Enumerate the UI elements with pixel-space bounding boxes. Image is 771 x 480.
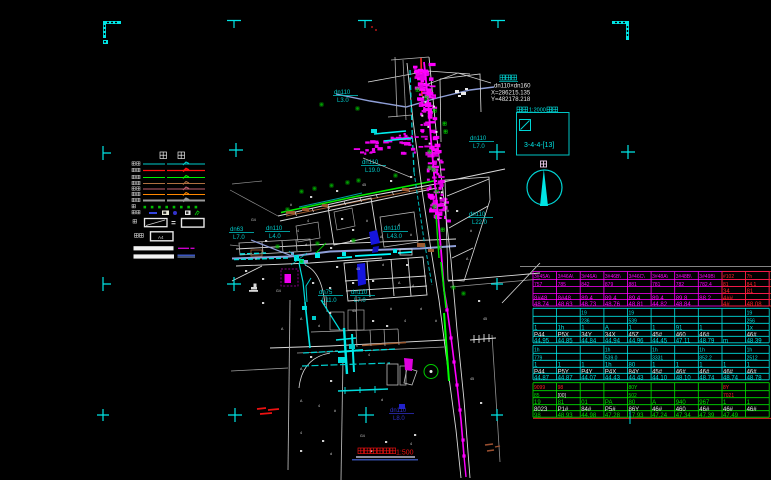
svg-text:#: # (470, 229, 472, 233)
svg-text:1x: 1x (747, 326, 753, 332)
svg-text:d: d (420, 307, 422, 311)
svg-text:44.87: 44.87 (558, 376, 574, 382)
svg-text:dn110×dn160: dn110×dn160 (494, 84, 531, 90)
svg-text:#: # (447, 209, 449, 213)
svg-text:256: 256 (747, 319, 756, 325)
svg-text:81: 81 (723, 282, 729, 288)
svg-text:L19.0: L19.0 (365, 168, 381, 174)
svg-text:48.76: 48.76 (605, 302, 621, 308)
svg-text:48.84: 48.84 (676, 302, 692, 308)
svg-text:4: 4 (368, 353, 370, 357)
svg-text:4: 4 (297, 229, 299, 233)
svg-text:dn110: dn110 (470, 136, 487, 142)
svg-text:4: 4 (307, 219, 309, 223)
svg-text:44.45: 44.45 (652, 339, 668, 345)
svg-text:47.11: 47.11 (676, 339, 691, 345)
svg-text:940: 940 (676, 400, 687, 406)
svg-text:G4: G4 (360, 434, 365, 438)
svg-text:d: d (318, 324, 320, 328)
svg-text:48.63: 48.63 (558, 302, 574, 308)
svg-text:4: 4 (410, 442, 412, 446)
svg-text:G4: G4 (276, 289, 281, 293)
svg-text:L7.0: L7.0 (354, 298, 366, 304)
svg-text:842: 842 (581, 282, 590, 288)
svg-text:3#46A\: 3#46A\ (558, 274, 574, 280)
svg-text:3#46C\: 3#46C\ (629, 274, 646, 280)
svg-text:A: A (605, 326, 609, 332)
svg-text:48.78: 48.78 (747, 376, 763, 382)
svg-text:1h: 1h (558, 326, 565, 332)
svg-text:539.0: 539.0 (605, 356, 618, 362)
svg-text:44.95: 44.95 (534, 339, 550, 345)
svg-text:3-4-4-[13]: 3-4-4-[13] (524, 142, 554, 149)
svg-text:dn110: dn110 (384, 226, 401, 232)
svg-text:9099: 9099 (534, 385, 545, 391)
svg-text:PA: PA (605, 400, 613, 406)
svg-text:48.73: 48.73 (581, 302, 597, 308)
svg-text:85: 85 (534, 393, 540, 399)
svg-text:45: 45 (352, 309, 356, 313)
svg-text:45: 45 (470, 377, 474, 381)
svg-text:L4.0: L4.0 (269, 234, 281, 240)
svg-text:7021: 7021 (723, 393, 734, 399)
svg-text:44.43: 44.43 (629, 376, 645, 382)
svg-text:A: A (652, 400, 656, 406)
svg-text:Y=482178.218: Y=482178.218 (491, 97, 531, 103)
svg-text:98: 98 (558, 385, 564, 391)
svg-text:757: 757 (534, 282, 543, 288)
svg-text:L8.0: L8.0 (393, 416, 405, 422)
svg-text:X=286215.135: X=286215.135 (491, 91, 531, 97)
svg-text:4: 4 (412, 284, 414, 288)
svg-text:#: # (255, 257, 257, 261)
svg-text:48.08: 48.08 (747, 302, 763, 308)
svg-text:dn110: dn110 (266, 226, 283, 232)
svg-text:#: # (334, 409, 336, 413)
svg-text:#: # (290, 203, 292, 207)
svg-text:#: # (390, 307, 392, 311)
svg-text:785: 785 (558, 282, 567, 288)
svg-text:3#48A\: 3#48A\ (652, 274, 668, 280)
svg-text:#: # (435, 319, 437, 323)
svg-text:#: # (410, 233, 412, 237)
svg-text:19: 19 (629, 311, 635, 317)
svg-text:781: 781 (652, 282, 661, 288)
svg-text:1h: 1h (699, 348, 705, 354)
svg-text:539: 539 (629, 319, 638, 325)
svg-text:3#46A\: 3#46A\ (581, 274, 597, 280)
svg-text:19: 19 (747, 311, 753, 317)
svg-text:44.10: 44.10 (652, 376, 668, 382)
svg-text:L22.0: L22.0 (472, 220, 488, 226)
svg-text:19: 19 (534, 400, 541, 406)
svg-text:46#: 46# (747, 407, 758, 413)
svg-text:81: 81 (558, 400, 565, 406)
svg-text:dn110: dn110 (469, 212, 486, 218)
svg-text:4: 4 (300, 431, 302, 435)
svg-text:45: 45 (362, 183, 366, 187)
svg-text:48.81: 48.81 (629, 302, 645, 308)
svg-text:3#45A\: 3#45A\ (534, 274, 550, 280)
svg-text:#102: #102 (723, 274, 734, 280)
svg-text:dn75: dn75 (319, 290, 333, 296)
svg-text:dn110: dn110 (334, 90, 351, 96)
svg-text:88.2: 88.2 (699, 296, 711, 302)
svg-text:502: 502 (629, 393, 638, 399)
svg-text:48.10: 48.10 (676, 376, 692, 382)
svg-text:G4: G4 (251, 218, 256, 222)
svg-text:80: 80 (629, 400, 636, 406)
svg-text:d: d (382, 263, 384, 267)
svg-text:48.74: 48.74 (723, 376, 739, 382)
svg-text:44.96: 44.96 (629, 339, 645, 345)
svg-text:d: d (305, 243, 307, 247)
svg-text:4: 4 (318, 404, 320, 408)
svg-text:44.07: 44.07 (581, 376, 597, 382)
svg-text:782.4: 782.4 (699, 282, 712, 288)
svg-text:[00]: [00] (558, 393, 567, 399)
svg-text:45: 45 (483, 317, 487, 321)
svg-text:L7.0: L7.0 (473, 144, 485, 150)
svg-text:1h: 1h (534, 348, 540, 354)
svg-text:967: 967 (699, 400, 710, 406)
svg-text:3#49B\: 3#49B\ (699, 274, 715, 280)
svg-text:44.43: 44.43 (605, 376, 621, 382)
svg-text:1h: 1h (605, 363, 612, 369)
svg-text:dn110: dn110 (390, 408, 407, 414)
svg-text:dn110: dn110 (351, 290, 368, 296)
svg-text:01: 01 (581, 400, 588, 406)
svg-text:84.1: 84.1 (747, 282, 757, 288)
svg-text:19: 19 (581, 311, 587, 317)
svg-text:2512: 2512 (747, 356, 758, 362)
svg-text:L11.0: L11.0 (322, 298, 337, 304)
svg-text:44.85: 44.85 (558, 339, 574, 345)
svg-text:1h: 1h (605, 348, 611, 354)
svg-text:4: 4 (404, 319, 406, 323)
svg-text:L3.0: L3.0 (337, 98, 349, 104)
svg-text:881: 881 (629, 282, 638, 288)
svg-text:dn63: dn63 (230, 227, 244, 233)
svg-text:1h: 1h (652, 348, 658, 354)
svg-text:44.87: 44.87 (534, 376, 550, 382)
svg-text:44.84: 44.84 (581, 339, 597, 345)
svg-text:852.2: 852.2 (699, 356, 712, 362)
svg-text:L43.0: L43.0 (387, 234, 403, 240)
svg-text:3#48B\: 3#48B\ (676, 274, 692, 280)
svg-text:7h: 7h (747, 274, 753, 280)
svg-text:4#: 4# (723, 302, 730, 308)
svg-text:48.39: 48.39 (747, 339, 763, 345)
svg-text:1h: 1h (747, 348, 753, 354)
svg-text:45: 45 (356, 267, 360, 271)
svg-text:d: d (330, 452, 332, 456)
svg-text:1:500: 1:500 (396, 450, 414, 457)
svg-text:80: 80 (629, 363, 636, 369)
svg-text:8Y: 8Y (723, 385, 730, 391)
svg-text:44.82: 44.82 (652, 302, 668, 308)
svg-text:80Y: 80Y (629, 385, 639, 391)
svg-text:779: 779 (534, 356, 543, 362)
svg-text:81: 81 (747, 289, 754, 295)
svg-text:48.74: 48.74 (534, 302, 550, 308)
svg-text:236: 236 (581, 319, 590, 325)
svg-text:3#46B\: 3#46B\ (605, 274, 621, 280)
svg-text:L7.0: L7.0 (233, 235, 245, 241)
svg-text:34: 34 (723, 289, 730, 295)
svg-text:782: 782 (676, 282, 685, 288)
svg-text:44.94: 44.94 (605, 339, 621, 345)
svg-text:#: # (366, 219, 368, 223)
svg-text:48.79: 48.79 (699, 339, 715, 345)
svg-text:A4: A4 (158, 235, 164, 240)
svg-text:d: d (381, 398, 383, 402)
svg-text:91: 91 (676, 326, 683, 332)
svg-text:m: m (723, 339, 728, 345)
svg-text:48.74: 48.74 (699, 376, 715, 382)
svg-text:3331: 3331 (652, 356, 663, 362)
svg-text:879: 879 (605, 282, 614, 288)
